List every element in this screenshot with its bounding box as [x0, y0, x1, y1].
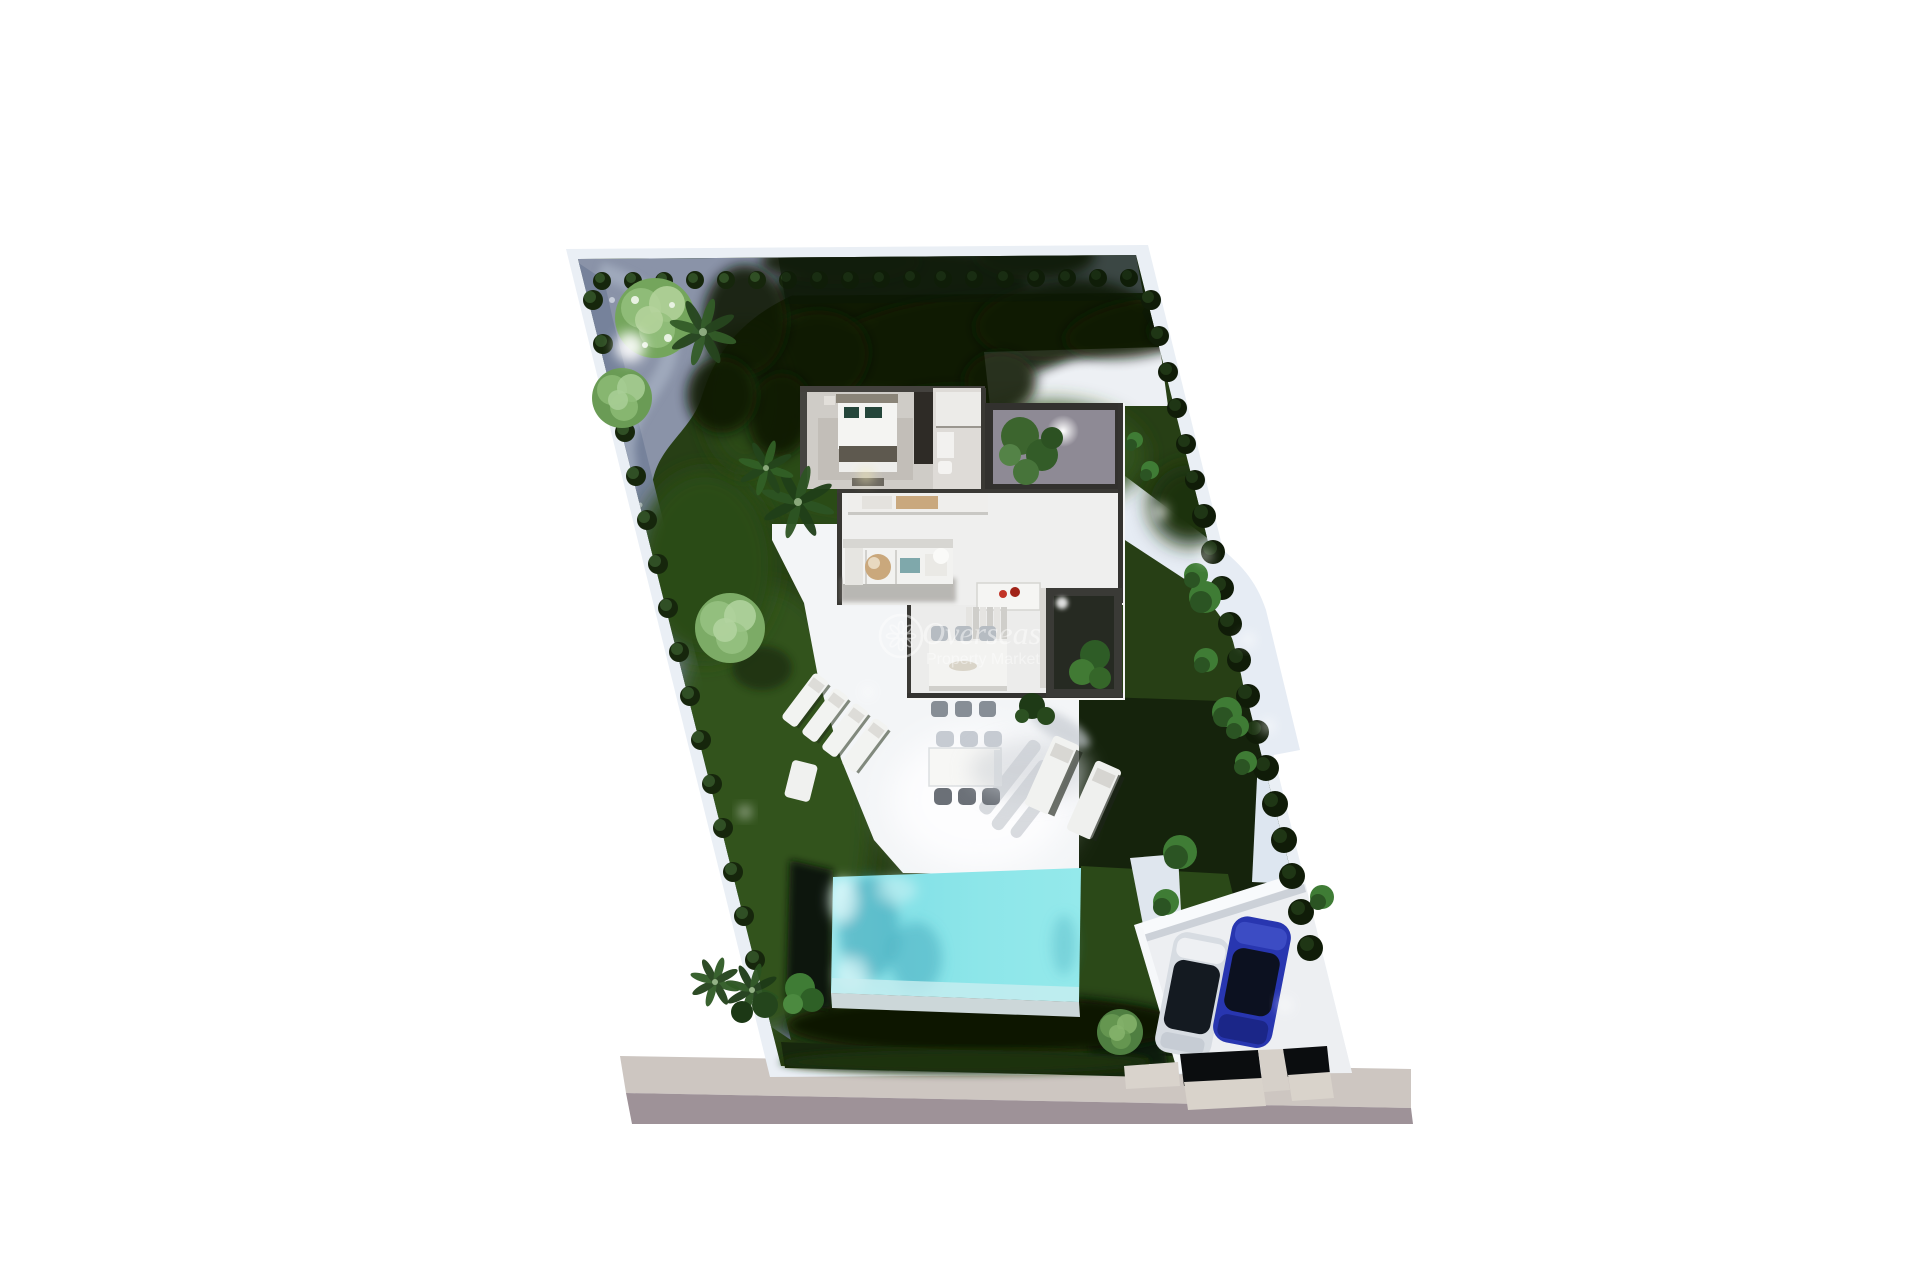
- svg-text:Property Market: Property Market: [926, 651, 1040, 668]
- svg-text:Overseas: Overseas: [922, 615, 1041, 651]
